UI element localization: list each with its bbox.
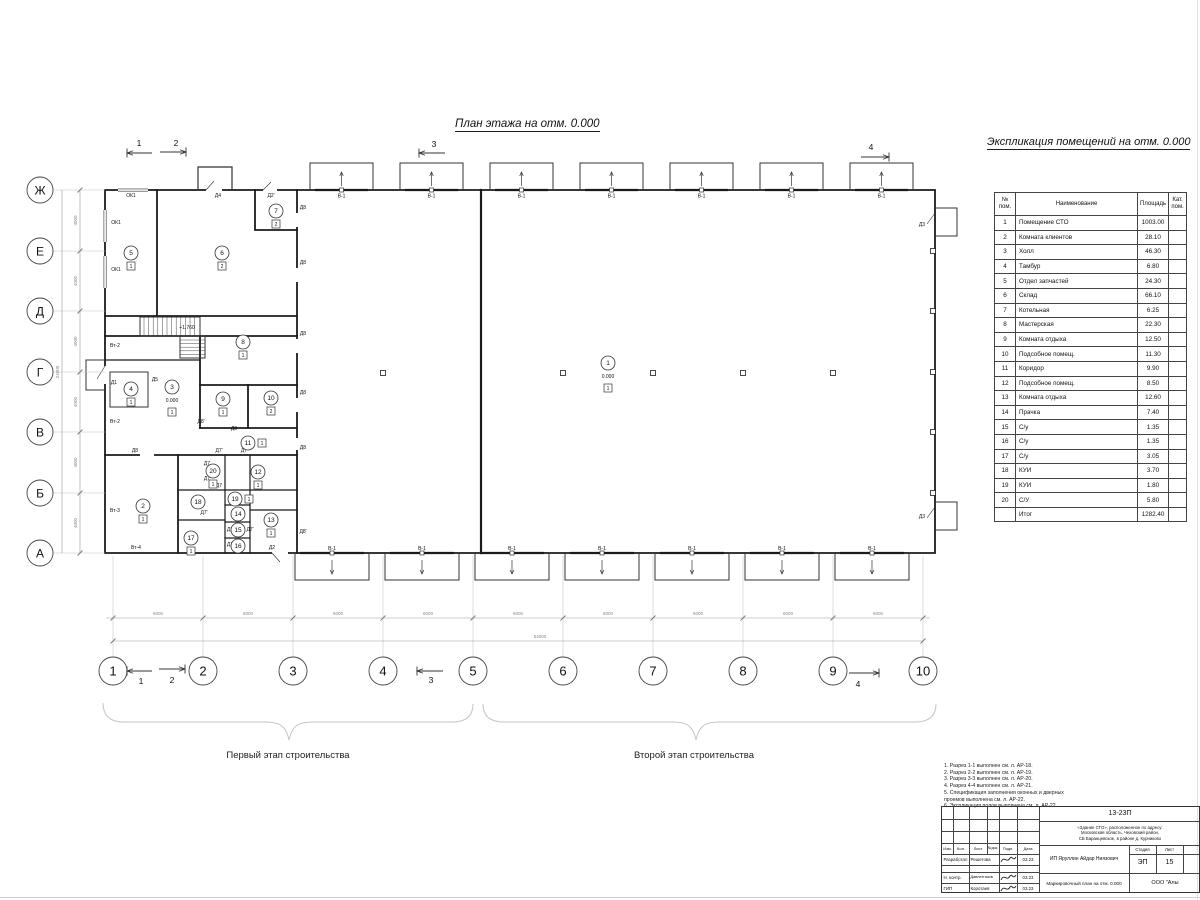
axis-bubble-label: 10 [916, 664, 930, 679]
axis-bubble-label: Г [37, 365, 44, 379]
gate-pivot [610, 188, 614, 192]
floor-tag-label: 1 [261, 441, 264, 447]
column-marker [741, 371, 746, 376]
door-window-label: +1.760 [179, 325, 195, 331]
room-number: 14 [995, 405, 1016, 420]
gate-label: В-1 [878, 194, 886, 200]
room-category [1169, 332, 1187, 347]
room-number: 9 [995, 332, 1016, 347]
note-line: 4. Разрез 4-4 выполнен см. л. АР-21. [944, 783, 1064, 790]
dimension-label: 6000 [783, 611, 794, 616]
axis-bubble-label: 7 [649, 664, 656, 679]
floor-tag-label: 1 [242, 353, 245, 359]
room-schedule-table: № пом. Наименование Площадь Кат. пом. 1П… [994, 192, 1187, 522]
section-mark-label: 4 [869, 142, 874, 152]
stage-label: Стадия [1129, 845, 1156, 854]
company-name: ООО "Алы [1129, 873, 1200, 893]
col-podp: Подп. [999, 843, 1017, 854]
axis-bubble-label: 8 [739, 664, 746, 679]
room-number [995, 507, 1016, 522]
room-area: 5.80 [1138, 493, 1169, 508]
room-category [1169, 376, 1187, 391]
room-number: 3 [170, 384, 174, 391]
room-number: 2 [141, 503, 145, 510]
room-category [1169, 288, 1187, 303]
room-number: 8 [995, 318, 1016, 333]
room-number: 10 [995, 347, 1016, 362]
table-row: 8Мастерская22.30 [995, 318, 1187, 333]
section-mark-label: 2 [174, 138, 179, 148]
list-label: Лист [1156, 845, 1183, 854]
row-name-ncontr: Давлетгазов [969, 872, 1001, 883]
room-area: 66.10 [1138, 288, 1169, 303]
gate-label: В-1 [688, 546, 696, 552]
room-area: 11.30 [1138, 347, 1169, 362]
room-category [1169, 493, 1187, 508]
room-area: 8.50 [1138, 376, 1169, 391]
room-category [1169, 434, 1187, 449]
door-window-label: Д8 [132, 448, 138, 454]
room-number: 14 [234, 511, 242, 518]
room-name: С/у [1016, 420, 1138, 435]
room-number: 1 [606, 360, 610, 367]
dimension-total-label: 54000 [534, 634, 547, 639]
room-category [1169, 216, 1187, 231]
row-role-developer: Разработал [942, 854, 971, 865]
room-number: 6 [995, 288, 1016, 303]
room-area: 6.25 [1138, 303, 1169, 318]
column-marker [931, 249, 936, 254]
row-role-ncontr: Н. контр. [942, 872, 971, 883]
client-name: ИП Яруллин Айдар Ниязович [1039, 845, 1129, 873]
room-area: 28.10 [1138, 230, 1169, 245]
table-row: 2Комната клиентов28.10 [995, 230, 1187, 245]
door-window-label: Д5 [152, 377, 158, 383]
door-window-label: Д8 [300, 205, 306, 211]
row-name-gip: Коротаев [969, 883, 1001, 893]
floor-tag-label: 1 [270, 531, 273, 537]
axis-bubble-label: 2 [199, 664, 206, 679]
room-name: Подсобное помещ. [1016, 376, 1138, 391]
col-izm: Изм. [942, 843, 953, 854]
door-window-label: Д8' [299, 529, 306, 535]
room-area: 24.30 [1138, 274, 1169, 289]
axis-bubble-label: 5 [469, 664, 476, 679]
dimension-label: 4000 [73, 517, 78, 528]
section-mark-label: 4 [856, 679, 861, 689]
floor-tag-label: 2 [275, 222, 278, 228]
stage-braces [103, 703, 936, 740]
col-ndok: №док. [987, 843, 999, 854]
room-category [1169, 259, 1187, 274]
door-window-label: Д8 [231, 426, 237, 432]
axis-bubble-label: 1 [109, 664, 116, 679]
room-number: 13 [267, 517, 275, 524]
column-marker [651, 371, 656, 376]
floor-tag-label: 1 [190, 549, 193, 555]
room-number: 13 [995, 391, 1016, 406]
sheet-title: Маркировочный план на отм. 0.000 [1039, 873, 1129, 893]
room-category [1169, 245, 1187, 260]
room-category [1169, 449, 1187, 464]
room-name: Коридор [1016, 361, 1138, 376]
room-number: 20 [209, 468, 217, 475]
gate-label: В-1 [608, 194, 616, 200]
stage-label-first: Первый этап строительства [226, 750, 350, 761]
room-category [1169, 391, 1187, 406]
note-line: 2. Разрез 2-2 выполнен см. л. АР-19. [944, 770, 1064, 777]
dimension-label: 4000 [73, 215, 78, 226]
table-row: 9Комната отдыха12.50 [995, 332, 1187, 347]
room-number: 11 [995, 361, 1016, 376]
dimension-label: 4000 [73, 396, 78, 407]
door-window-label: Д7' [246, 527, 253, 533]
section-mark-label: 2 [170, 675, 175, 685]
table-row: 6Склад66.10 [995, 288, 1187, 303]
room-area: 3.70 [1138, 464, 1169, 479]
table-row: 7Котельная6.25 [995, 303, 1187, 318]
note-line: 1. Разрез 1-1 выполнен см. л. АР-18. [944, 763, 1064, 770]
door-window-label: Д3 [919, 222, 925, 228]
room-category [1169, 420, 1187, 435]
col-category: Кат. пом. [1169, 193, 1187, 216]
room-number: 12 [254, 469, 262, 476]
floor-tag-label: 1 [222, 410, 225, 416]
room-area: 1003.00 [1138, 216, 1169, 231]
project-address: «Здание СТО», расположенное по адресу: М… [1039, 821, 1200, 845]
gate-pivot [700, 188, 704, 192]
room-name: Прачка [1016, 405, 1138, 420]
column-marker [831, 371, 836, 376]
room-number: 12 [995, 376, 1016, 391]
room-name: Котельная [1016, 303, 1138, 318]
gate-label: В-1 [698, 194, 706, 200]
room-name: С/у [1016, 449, 1138, 464]
axis-bubble-label: Е [36, 244, 44, 258]
door-window-label: Вт-3 [110, 508, 120, 514]
room-number: 1 [995, 216, 1016, 231]
gate-pivot [520, 188, 524, 192]
room-number: 2 [995, 230, 1016, 245]
level-mark: 0.000 [602, 374, 615, 380]
dimension-label: 6000 [423, 611, 434, 616]
gate-pivot [790, 188, 794, 192]
room-number: 5 [129, 250, 133, 257]
table-row: 15С/у1.35 [995, 420, 1187, 435]
column-marker [931, 430, 936, 435]
dimension-total-label: 24000 [55, 365, 60, 378]
table-row: 10Подсобное помещ.11.30 [995, 347, 1187, 362]
room-number: 4 [129, 386, 133, 393]
room-name: Мастерская [1016, 318, 1138, 333]
dimension-label: 6000 [693, 611, 704, 616]
plan-title: План этажа на отм. 0.000 [455, 118, 600, 132]
room-area: 3.05 [1138, 449, 1169, 464]
door-window-label: Д8' [197, 419, 204, 425]
room-area: 12.50 [1138, 332, 1169, 347]
stage-value: ЭП [1129, 854, 1156, 873]
signature-ncontr [999, 871, 1017, 883]
row-date-developer: 03.23 [1017, 854, 1039, 865]
room-name: С/У [1016, 493, 1138, 508]
column-marker [561, 371, 566, 376]
room-number: 20 [995, 493, 1016, 508]
column-marker [931, 370, 936, 375]
room-category [1169, 318, 1187, 333]
room-name: Подсобное помещ. [1016, 347, 1138, 362]
stage-label-second: Второй этап строительства [634, 750, 755, 761]
door-window-label: Д7' [215, 448, 222, 454]
room-number: 16 [234, 543, 242, 550]
room-name: Холл [1016, 245, 1138, 260]
room-name: Комната отдыха [1016, 332, 1138, 347]
door-window-label: Вт-2 [110, 419, 120, 425]
axis-bubble-label: 6 [559, 664, 566, 679]
axis-bubble-label: 9 [829, 664, 836, 679]
axis-bubble-label: В [36, 425, 44, 439]
gate-label: В-1 [338, 194, 346, 200]
door-window-label: ОК1 [111, 220, 121, 226]
room-number: 8 [241, 339, 245, 346]
notes: 1. Разрез 1-1 выполнен см. л. АР-18.2. Р… [944, 763, 1064, 810]
note-line: 3. Разрез 3-3 выполнен см. л. АР-20. [944, 776, 1064, 783]
section-mark-label: 3 [429, 675, 434, 685]
col-data: Дата [1017, 843, 1039, 854]
room-category [1169, 347, 1187, 362]
row-name-developer: Решетова [969, 854, 1001, 865]
col-area: Площадь [1138, 193, 1169, 216]
door-window-label: Д7' [200, 510, 207, 516]
column-marker [931, 309, 936, 314]
room-number: 17 [187, 535, 195, 542]
room-number: 18 [194, 499, 202, 506]
room-number: 10 [267, 395, 275, 402]
room-number: 7 [274, 208, 278, 215]
gate-pivot [880, 188, 884, 192]
room-area: 1282.40 [1138, 507, 1169, 522]
address-line-3: СБ Баранцевское, в районе д. Курниково [1079, 836, 1161, 841]
room-area: 12.60 [1138, 391, 1169, 406]
room-number: 3 [995, 245, 1016, 260]
signature-developer [999, 854, 1017, 865]
table-row: 19КУИ1.80 [995, 478, 1187, 493]
floor-tag-label: 1 [607, 386, 610, 392]
door-window-label: Д1 [111, 380, 117, 386]
column-marker [931, 491, 936, 496]
door-window-label: Д3 [919, 514, 925, 520]
axis-bubble-label: Ж [34, 183, 45, 197]
room-number: 11 [245, 440, 252, 447]
room-number: 4 [995, 259, 1016, 274]
col-name: Наименование [1016, 193, 1138, 216]
door-window-label: Вт-2 [110, 343, 120, 349]
axis-bubble-label: Д [36, 304, 44, 318]
floor-tag-label: 1 [257, 483, 260, 489]
door-window-label: Д2' [267, 193, 274, 199]
room-name: Отдел запчастей [1016, 274, 1138, 289]
room-number: 7 [995, 303, 1016, 318]
door-window-label: Д8 [300, 390, 306, 396]
floor-tag-label: 1 [212, 482, 215, 488]
door-window-label: ОК1 [126, 193, 136, 199]
room-category [1169, 464, 1187, 479]
row-date-ncontr: 03.23 [1017, 872, 1039, 883]
level-mark: 0.000 [166, 398, 179, 404]
room-name: Помещение СТО [1016, 216, 1138, 231]
dimension-label: 4000 [73, 336, 78, 347]
axis-bubble-label: А [36, 546, 44, 560]
room-number: 18 [995, 464, 1016, 479]
room-category [1169, 507, 1187, 522]
room-number: 15 [995, 420, 1016, 435]
dimension-label: 6000 [243, 611, 254, 616]
windows-and-leaves [97, 181, 935, 562]
gate-pivot [340, 188, 344, 192]
section-mark-label: 1 [137, 138, 142, 148]
floor-tag-label: 1 [130, 264, 133, 270]
door-window-label: Д4 [215, 193, 221, 199]
signature-gip [999, 883, 1017, 893]
door-window-label: Д8 [300, 445, 306, 451]
room-category [1169, 230, 1187, 245]
door-window-label: Вт-4 [131, 545, 141, 551]
room-number: 19 [231, 496, 239, 503]
room-number: 17 [995, 449, 1016, 464]
gate-label: В-1 [778, 546, 786, 552]
room-area: 46.30 [1138, 245, 1169, 260]
col-kol: Кол. [953, 843, 969, 854]
table-row: 12Подсобное помещ.8.50 [995, 376, 1187, 391]
table-header-row: № пом. Наименование Площадь Кат. пом. [995, 193, 1187, 216]
doc-number: 13-23П [1039, 807, 1200, 821]
title-block: Изм. Кол. Лист №док. Подп. Дата Разработ… [941, 806, 1200, 893]
room-area: 1.80 [1138, 478, 1169, 493]
section-mark-label: 3 [432, 139, 437, 149]
room-name: Комната клиентов [1016, 230, 1138, 245]
door-window-label: ОК1 [111, 267, 121, 273]
room-name: КУИ [1016, 478, 1138, 493]
room-number: 5 [995, 274, 1016, 289]
room-area: 1.35 [1138, 420, 1169, 435]
dimension-label: 6000 [153, 611, 164, 616]
table-row: 16С/у1.35 [995, 434, 1187, 449]
floor-tag-label: 2 [270, 409, 273, 415]
table-row: 13Комната отдыха12.60 [995, 391, 1187, 406]
room-name: Тамбур [1016, 259, 1138, 274]
gate-label: В-1 [328, 546, 336, 552]
row-date-gip: 03.23 [1017, 883, 1039, 893]
gate-label: В-1 [868, 546, 876, 552]
table-row: 18КУИ3.70 [995, 464, 1187, 479]
table-row: 4Тамбур6.80 [995, 259, 1187, 274]
room-number: 15 [234, 527, 242, 534]
door-window-label: Д2 [269, 545, 275, 551]
room-category [1169, 303, 1187, 318]
table-row: 3Холл46.30 [995, 245, 1187, 260]
dimension-label: 4000 [73, 275, 78, 286]
section-mark-label: 1 [139, 676, 144, 686]
gate-pivot [430, 188, 434, 192]
table-row: 1Помещение СТО1003.00 [995, 216, 1187, 231]
floor-tag-label: 1 [130, 400, 133, 406]
floor-tag-label: 1 [142, 517, 145, 523]
drawing-sheet: 6000600060006000600060006000600060005400… [0, 0, 1200, 900]
room-number: 19 [995, 478, 1016, 493]
gate-label: В-1 [518, 194, 526, 200]
gate-label: В-1 [598, 546, 606, 552]
note-line: проемов выполнена см. л. АР-22. [944, 797, 1064, 804]
room-name: Склад [1016, 288, 1138, 303]
column-marker [381, 371, 386, 376]
floor-tag-label: 1 [248, 497, 251, 503]
room-name: КУИ [1016, 464, 1138, 479]
room-area: 6.80 [1138, 259, 1169, 274]
room-name: Комната отдыха [1016, 391, 1138, 406]
room-area: 7.40 [1138, 405, 1169, 420]
axis-bubble-label: Б [36, 486, 44, 500]
axis-bubble-label: 4 [379, 664, 386, 679]
gate-label: В-1 [428, 194, 436, 200]
list-value: 15 [1156, 854, 1183, 873]
note-line: 5. Спецификация заполнения оконных и две… [944, 790, 1064, 797]
room-number: 9 [221, 396, 225, 403]
room-area: 9.90 [1138, 361, 1169, 376]
table-total-row: Итог1282.40 [995, 507, 1187, 522]
room-category [1169, 274, 1187, 289]
dimension-label: 6000 [603, 611, 614, 616]
room-area: 1.35 [1138, 434, 1169, 449]
room-number: 6 [220, 250, 224, 257]
dimension-label: 6000 [513, 611, 524, 616]
col-number: № пом. [995, 193, 1016, 216]
dimension-label: 4000 [73, 457, 78, 468]
table-row: 11Коридор9.90 [995, 361, 1187, 376]
floor-tag-label: 1 [171, 410, 174, 416]
room-name: С/у [1016, 434, 1138, 449]
axis-bubble-label: 3 [289, 664, 296, 679]
table-row: 17С/у3.05 [995, 449, 1187, 464]
gate-label: В-1 [788, 194, 796, 200]
table-row: 5Отдел запчастей24.30 [995, 274, 1187, 289]
room-category [1169, 361, 1187, 376]
door-window-label: Д8 [300, 331, 306, 337]
gate-label: В-1 [418, 546, 426, 552]
dimension-label: 6000 [873, 611, 884, 616]
row-role-gip: ГИП [942, 883, 971, 893]
door-window-label: Д8 [300, 260, 306, 266]
table-row: 14Прачка7.40 [995, 405, 1187, 420]
col-list: Лист [969, 843, 987, 854]
table-row: 20С/У5.80 [995, 493, 1187, 508]
legend-title: Экспликация помещений на отм. 0.000 [987, 136, 1190, 150]
floor-tag-label: 2 [221, 264, 224, 270]
room-area: 22.30 [1138, 318, 1169, 333]
room-category [1169, 478, 1187, 493]
room-number: 16 [995, 434, 1016, 449]
dimension-label: 6000 [333, 611, 344, 616]
room-category [1169, 405, 1187, 420]
gate-label: В-1 [508, 546, 516, 552]
room-name: Итог [1016, 507, 1138, 522]
